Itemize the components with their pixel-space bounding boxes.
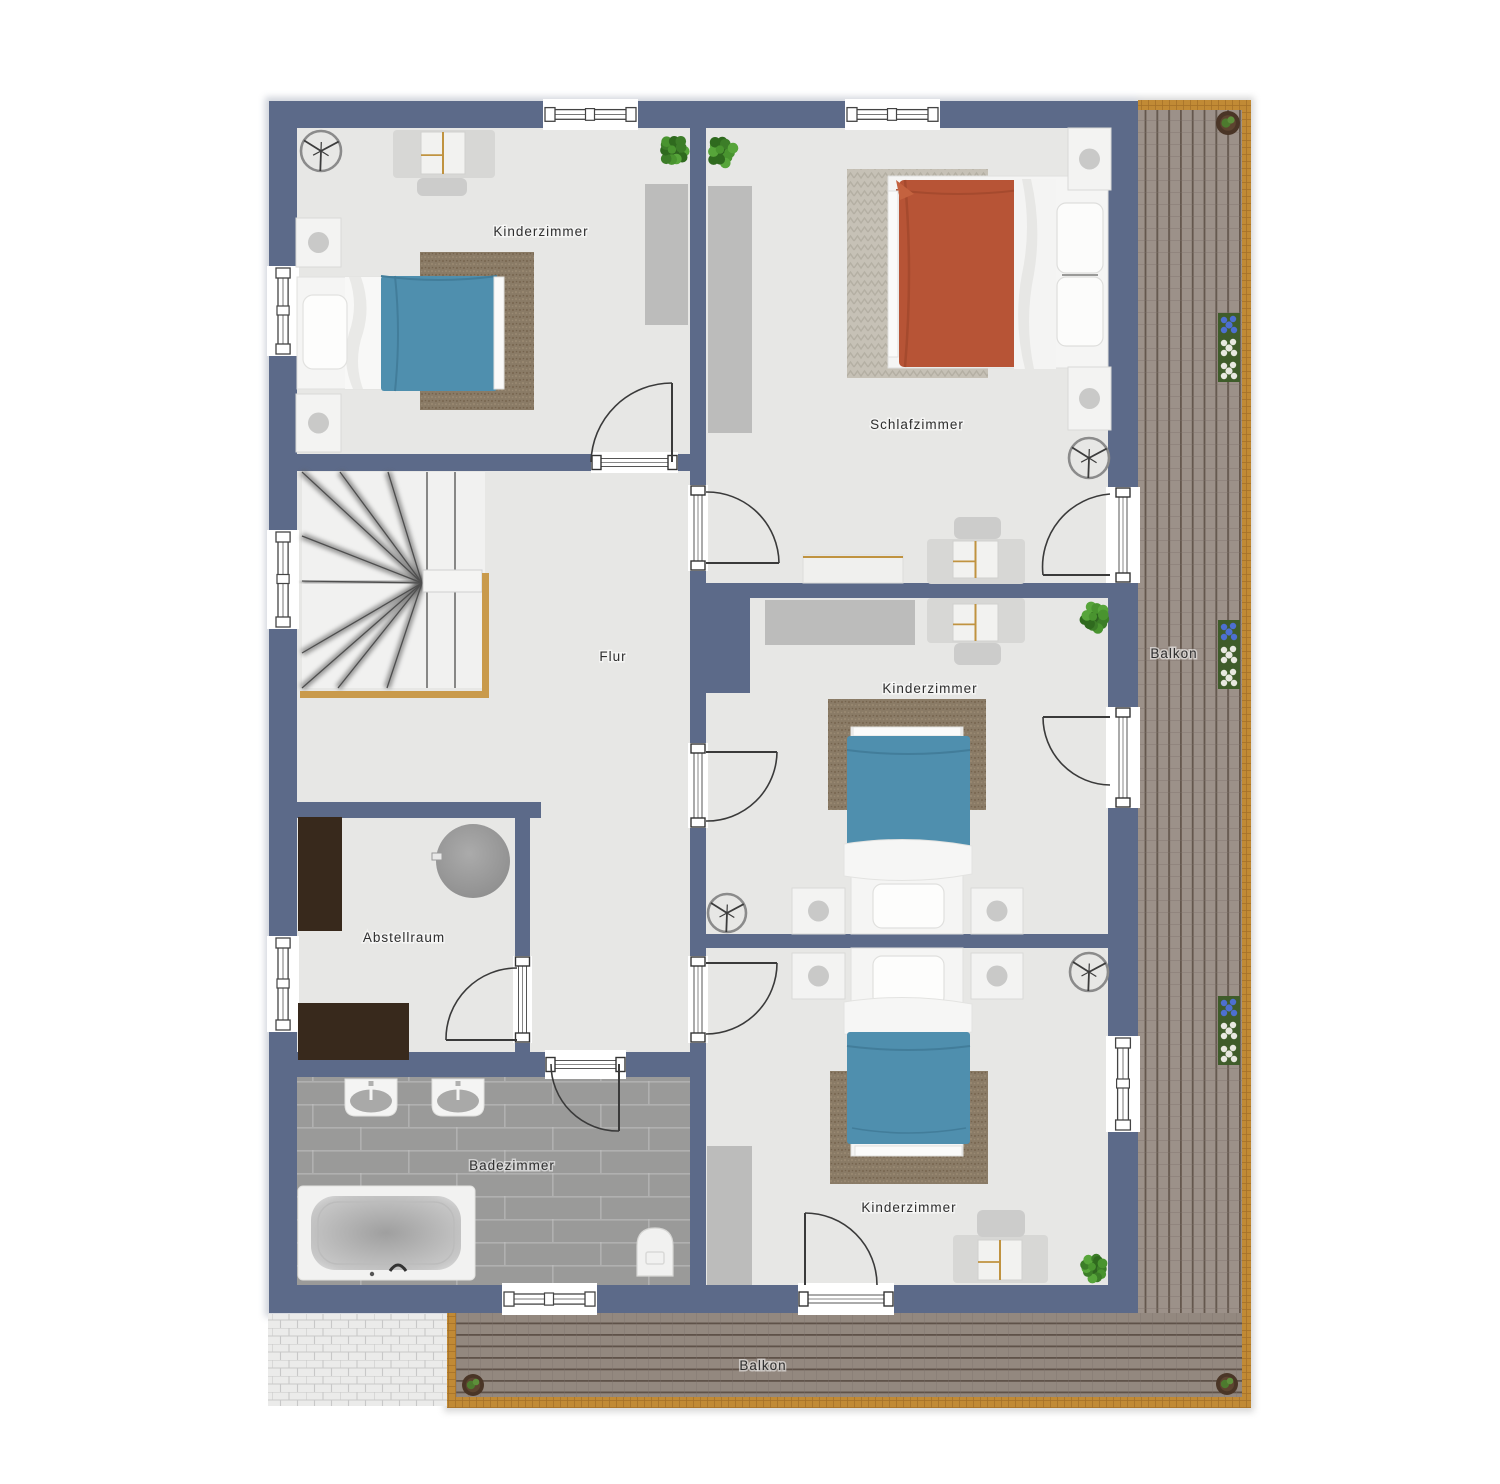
svg-text:Balkon: Balkon [739,1358,786,1373]
svg-text:Badezimmer: Badezimmer [469,1158,555,1173]
svg-text:Kinderzimmer: Kinderzimmer [882,681,977,696]
svg-text:Abstellraum: Abstellraum [363,930,445,945]
svg-text:Kinderzimmer: Kinderzimmer [493,224,588,239]
svg-text:Flur: Flur [599,649,626,664]
svg-text:Balkon: Balkon [1150,646,1197,661]
svg-text:Schlafzimmer: Schlafzimmer [870,417,964,432]
svg-text:Kinderzimmer: Kinderzimmer [861,1200,956,1215]
